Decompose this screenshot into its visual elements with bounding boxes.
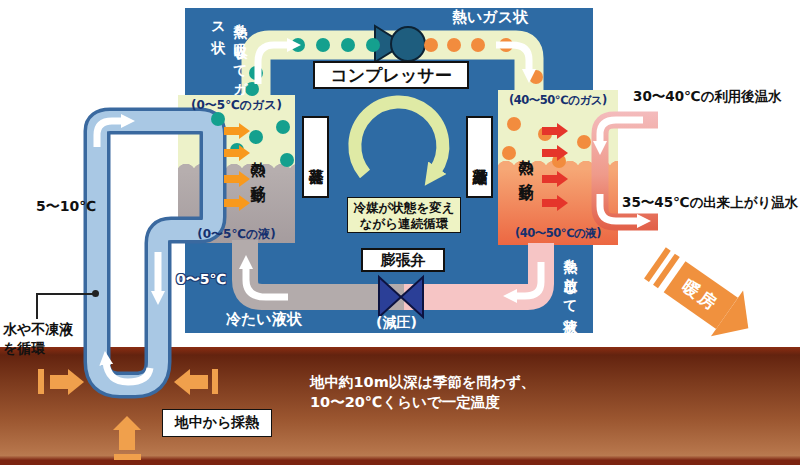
heat-arrow-icon bbox=[542, 149, 557, 157]
cycle-note-line1: 冷媒が状態を変え bbox=[348, 200, 460, 216]
condenser-heat-transfer-label: 熱の移動 bbox=[516, 148, 535, 233]
expansion-valve-label: 膨張弁 bbox=[361, 248, 445, 272]
ground-note-line2: 10〜20℃くらいで一定温度 bbox=[310, 392, 535, 412]
cycle-note-line2: ながら連続循環 bbox=[348, 216, 460, 232]
supply-water-label: 35〜45℃の出来上がり温水 bbox=[622, 194, 798, 212]
ground-loop-return-temp: 0〜5℃ bbox=[176, 271, 226, 289]
compressor-icon bbox=[375, 26, 425, 62]
evaporator-label: 蒸発器 bbox=[302, 116, 329, 198]
heat-arrow-icon bbox=[542, 127, 557, 135]
brine-note: 水や不凍液 を循環 bbox=[3, 320, 73, 358]
release-heat-note: 熱を放出して液状 bbox=[560, 247, 582, 319]
evaporator-gas-temp-label: (0〜5℃のガス) bbox=[178, 97, 295, 114]
compressor-label: コンプレッサー bbox=[313, 61, 469, 89]
heat-arrow-icon bbox=[224, 149, 239, 157]
ground-loop-supply-temp: 5〜10℃ bbox=[36, 198, 96, 216]
ground-heat-arrow-icon bbox=[190, 375, 208, 389]
heat-pump-diagram: コンプレッサー 蒸発器 凝縮器 膨張弁 地中から採熱 冷媒が状態を変え ながら連… bbox=[0, 0, 800, 465]
heat-arrow-icon bbox=[224, 175, 239, 183]
return-water-label: 30〜40℃の利用後温水 bbox=[633, 88, 782, 106]
ground-heat-arrow-icon bbox=[50, 375, 68, 389]
heating-arrow: 暖房 bbox=[663, 222, 800, 342]
cycle-arrow-icon bbox=[355, 102, 443, 174]
leader-line bbox=[36, 293, 95, 295]
ground-heat-extraction-label: 地中から採熱 bbox=[162, 409, 272, 437]
ground-arrow-tail bbox=[114, 454, 141, 460]
cold-liquid-state-label: 冷たい液状 bbox=[226, 310, 302, 329]
ground-heat-arrow-icon bbox=[119, 430, 135, 450]
hot-gas-state-label: 熱いガス状 bbox=[452, 8, 528, 27]
condenser-label: 凝縮器 bbox=[466, 116, 493, 198]
leader-line bbox=[36, 293, 38, 319]
evaporator-liquid-temp-label: (0〜5℃の液) bbox=[178, 226, 295, 243]
condenser-gas-temp-label: (40〜50℃のガス) bbox=[498, 93, 618, 108]
brine-note-line1: 水や不凍液 bbox=[3, 320, 73, 339]
ground-arrow-tail bbox=[212, 369, 218, 394]
heat-arrow-icon bbox=[224, 199, 239, 207]
cycle-note: 冷媒が状態を変え ながら連続循環 bbox=[347, 197, 461, 233]
leader-dot bbox=[92, 290, 99, 297]
ground-arrow-tail bbox=[38, 369, 44, 394]
brine-note-line2: を循環 bbox=[3, 339, 73, 358]
heat-arrow-icon bbox=[224, 127, 239, 135]
absorb-heat-note: 熱を吸収してガス状 bbox=[208, 12, 252, 100]
evaporator-heat-transfer-label: 熱の移動 bbox=[248, 150, 267, 235]
ground-note-line1: 地中約10m以深は季節を問わず、 bbox=[310, 372, 535, 392]
expansion-valve-icon bbox=[379, 277, 423, 317]
decompression-label: (減圧) bbox=[376, 314, 417, 332]
ground-note: 地中約10m以深は季節を問わず、 10〜20℃くらいで一定温度 bbox=[310, 372, 535, 412]
heat-arrow-icon bbox=[542, 199, 557, 207]
heat-arrow-icon bbox=[542, 175, 557, 183]
